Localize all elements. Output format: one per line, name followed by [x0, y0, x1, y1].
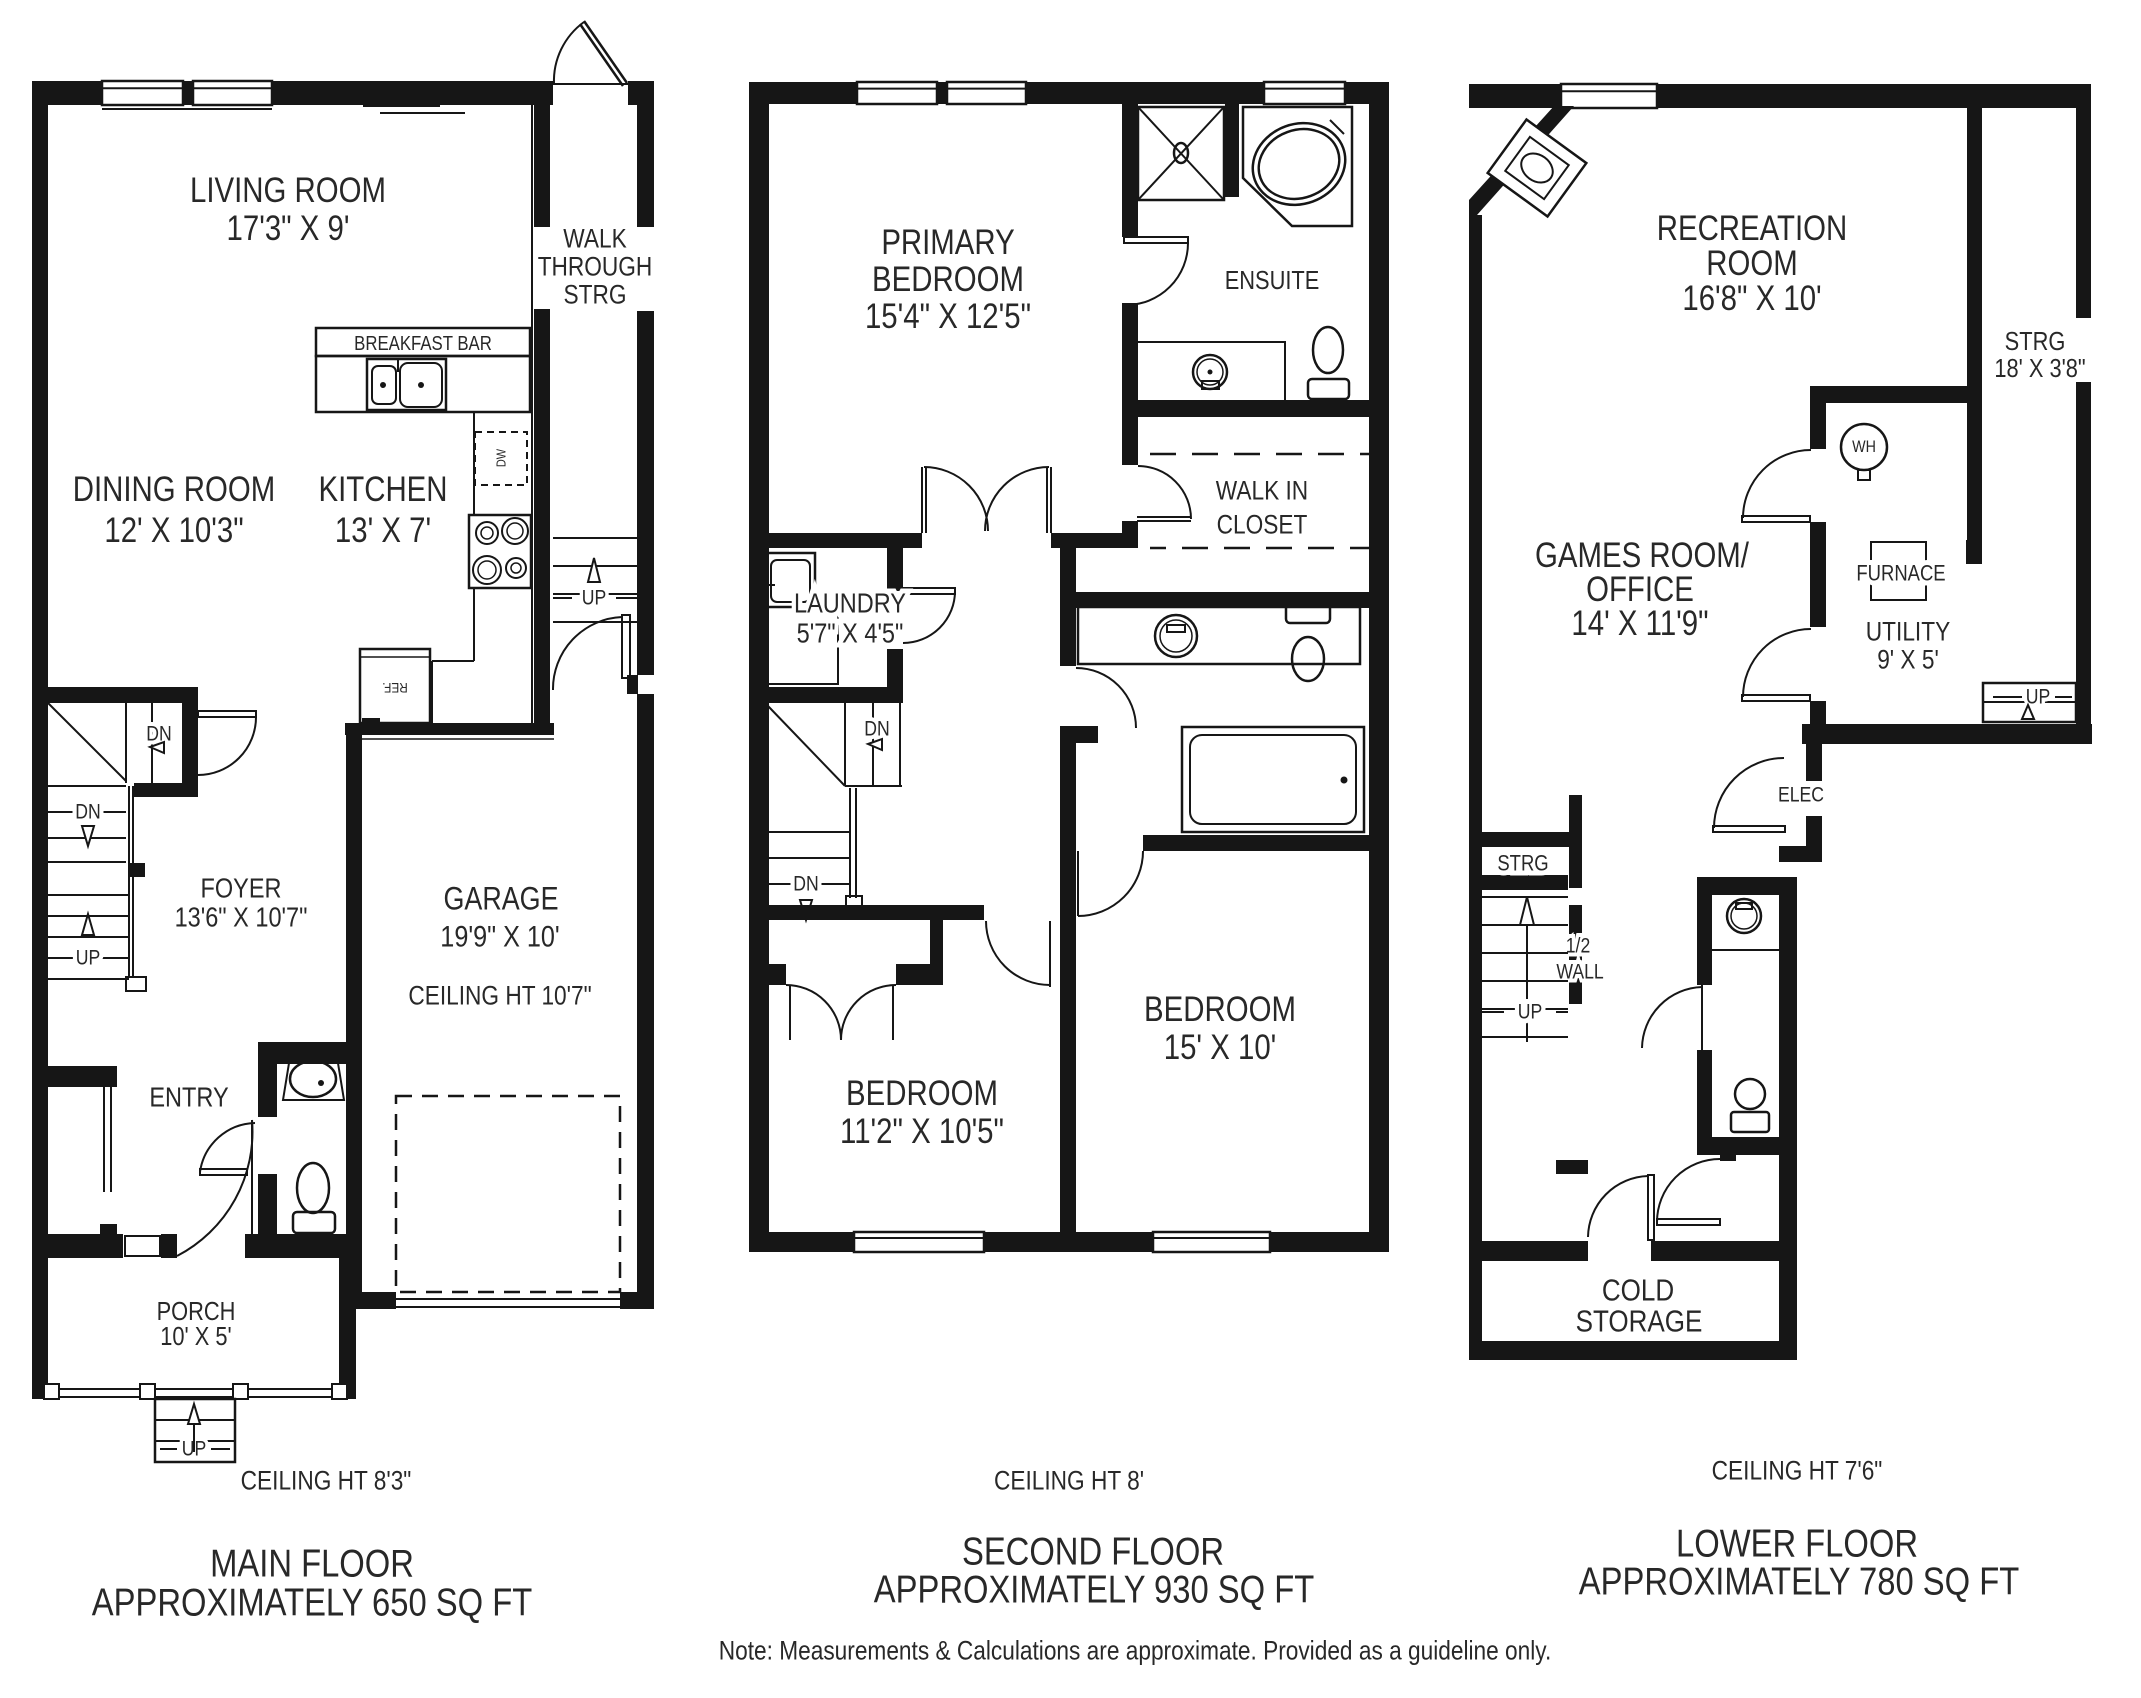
svg-text:19'9" X 10': 19'9" X 10' — [440, 919, 559, 953]
svg-text:14' X 11'9": 14' X 11'9" — [1571, 604, 1708, 643]
svg-text:REF.: REF. — [382, 680, 407, 696]
svg-text:DN: DN — [146, 722, 171, 746]
svg-text:ENSUITE: ENSUITE — [1225, 266, 1320, 295]
svg-text:WALK IN: WALK IN — [1216, 476, 1308, 506]
svg-text:10' X 5': 10' X 5' — [160, 1322, 231, 1351]
svg-text:CEILING HT 7'6": CEILING HT 7'6" — [1712, 1456, 1883, 1486]
svg-text:UTILITY: UTILITY — [1866, 617, 1951, 647]
svg-text:RECREATION: RECREATION — [1657, 209, 1848, 248]
svg-text:DINING ROOM: DINING ROOM — [73, 470, 275, 509]
svg-text:Note: Measurements & Calculati: Note: Measurements & Calculations are ap… — [719, 1636, 1551, 1666]
svg-text:STRG: STRG — [1497, 852, 1548, 876]
svg-text:APPROXIMATELY 780 SQ FT: APPROXIMATELY 780 SQ FT — [1579, 1559, 2019, 1603]
svg-text:STRG: STRG — [2005, 327, 2066, 356]
svg-text:MAIN FLOOR: MAIN FLOOR — [210, 1541, 414, 1585]
svg-text:LAUNDRY: LAUNDRY — [794, 589, 906, 619]
svg-text:18' X 3'8": 18' X 3'8" — [1994, 354, 2085, 383]
svg-text:ROOM: ROOM — [1706, 244, 1797, 283]
svg-text:COLD: COLD — [1602, 1274, 1674, 1309]
svg-text:FURNACE: FURNACE — [1856, 562, 1945, 586]
svg-text:WH: WH — [1852, 438, 1876, 456]
svg-text:STRG: STRG — [564, 280, 627, 310]
svg-text:THROUGH: THROUGH — [538, 252, 653, 282]
svg-text:5'7" X 4'5": 5'7" X 4'5" — [797, 619, 904, 649]
svg-text:13' X 7': 13' X 7' — [335, 511, 431, 550]
svg-text:DN: DN — [864, 717, 889, 741]
svg-text:UP: UP — [1518, 1000, 1542, 1024]
svg-text:LIVING ROOM: LIVING ROOM — [190, 171, 386, 210]
svg-text:11'2" X 10'5": 11'2" X 10'5" — [840, 1112, 1004, 1151]
svg-text:BREAKFAST BAR: BREAKFAST BAR — [354, 332, 492, 355]
svg-text:UP: UP — [2026, 685, 2050, 709]
svg-text:DN: DN — [75, 800, 100, 824]
svg-text:9' X 5': 9' X 5' — [1877, 645, 1939, 675]
svg-text:GARAGE: GARAGE — [443, 881, 558, 917]
svg-text:DN: DN — [793, 872, 818, 896]
svg-text:APPROXIMATELY 930 SQ FT: APPROXIMATELY 930 SQ FT — [874, 1567, 1314, 1611]
svg-text:DW: DW — [493, 448, 508, 467]
svg-text:CEILING HT 10'7": CEILING HT 10'7" — [408, 981, 591, 1011]
svg-text:WALK: WALK — [563, 224, 627, 254]
svg-text:BEDROOM: BEDROOM — [846, 1074, 998, 1113]
svg-text:16'8" X 10': 16'8" X 10' — [1682, 279, 1821, 318]
svg-text:ELEC: ELEC — [1778, 783, 1824, 807]
svg-text:17'3" X 9': 17'3" X 9' — [227, 209, 350, 248]
svg-text:CEILING HT 8'3": CEILING HT 8'3" — [241, 1466, 412, 1496]
svg-text:UP: UP — [582, 586, 606, 610]
svg-text:FOYER: FOYER — [201, 874, 282, 904]
svg-text:KITCHEN: KITCHEN — [318, 470, 447, 509]
svg-text:UP: UP — [76, 946, 100, 970]
svg-text:CEILING HT 8': CEILING HT 8' — [994, 1466, 1144, 1496]
svg-text:12' X 10'3": 12' X 10'3" — [104, 511, 243, 550]
svg-text:PRIMARY: PRIMARY — [881, 223, 1014, 262]
svg-text:STORAGE: STORAGE — [1576, 1305, 1703, 1340]
svg-text:1/2: 1/2 — [1566, 934, 1591, 958]
svg-text:CLOSET: CLOSET — [1217, 510, 1308, 540]
svg-text:15' X 10': 15' X 10' — [1164, 1028, 1277, 1067]
svg-text:ENTRY: ENTRY — [149, 1083, 228, 1113]
svg-text:BEDROOM: BEDROOM — [872, 260, 1024, 299]
svg-text:APPROXIMATELY 650 SQ FT: APPROXIMATELY 650 SQ FT — [92, 1580, 532, 1624]
svg-text:15'4" X 12'5": 15'4" X 12'5" — [865, 297, 1031, 336]
svg-text:BEDROOM: BEDROOM — [1144, 990, 1296, 1029]
svg-text:13'6" X 10'7": 13'6" X 10'7" — [175, 903, 308, 933]
